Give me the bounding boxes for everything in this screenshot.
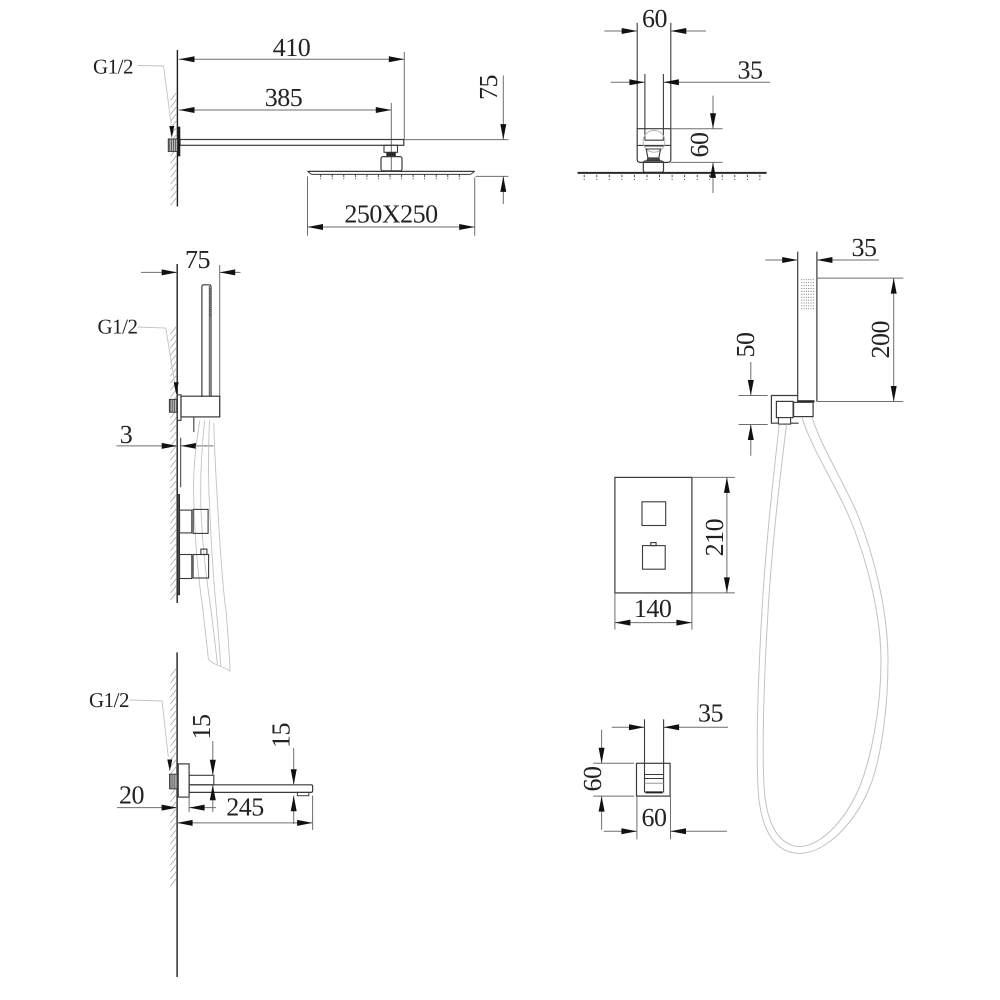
svg-text:35: 35 [738,56,763,85]
svg-text:75: 75 [474,75,503,100]
svg-text:15: 15 [267,723,296,748]
svg-text:50: 50 [731,332,760,358]
svg-text:210: 210 [700,518,729,556]
svg-text:60: 60 [642,4,668,33]
svg-text:60: 60 [642,803,668,832]
svg-text:3: 3 [120,420,133,449]
svg-text:G1/2: G1/2 [98,314,138,338]
svg-text:G1/2: G1/2 [89,688,129,712]
svg-text:245: 245 [226,793,264,822]
svg-text:35: 35 [698,699,723,728]
svg-text:200: 200 [866,321,895,359]
svg-text:385: 385 [265,83,303,112]
svg-text:410: 410 [273,33,311,62]
svg-text:60: 60 [578,766,607,792]
svg-text:G1/2: G1/2 [93,54,133,78]
svg-text:60: 60 [685,132,714,158]
svg-text:15: 15 [187,715,216,740]
svg-text:140: 140 [634,594,672,623]
svg-text:20: 20 [119,781,145,810]
svg-text:35: 35 [852,233,877,262]
svg-text:75: 75 [185,245,210,274]
svg-text:250X250: 250X250 [344,200,438,229]
